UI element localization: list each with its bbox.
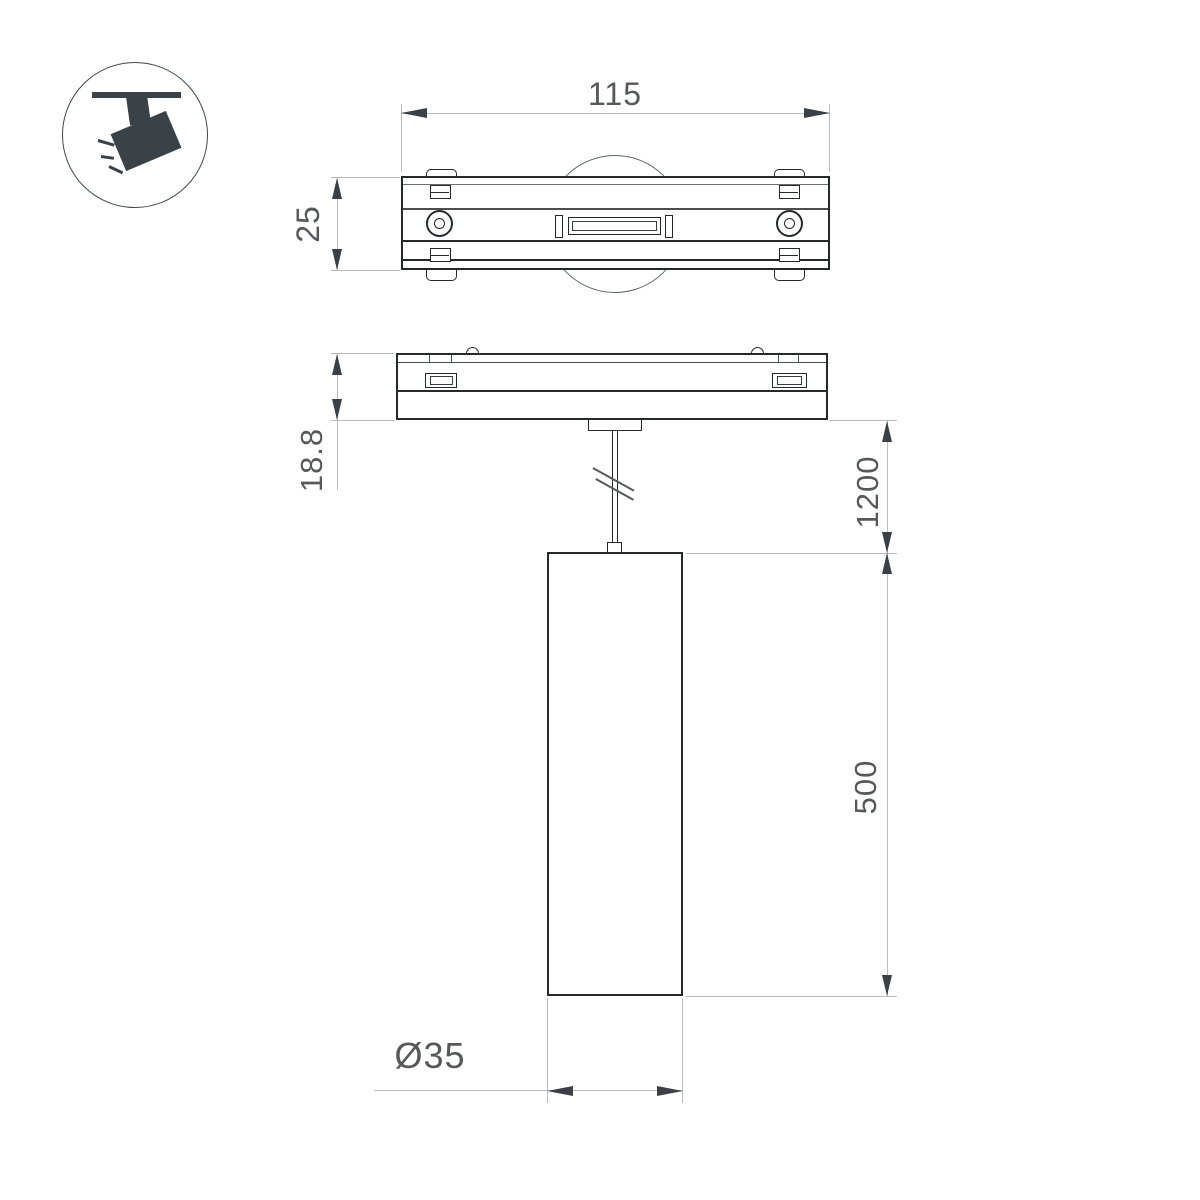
- mount-clip: [779, 248, 800, 262]
- side-clip-inner: [777, 376, 802, 385]
- profile-line: [403, 208, 828, 210]
- dimension-arrow: [332, 354, 342, 375]
- technical-drawing-canvas: 115 25 18.8 1200 500 Ø35: [0, 0, 1200, 1200]
- dimension-arrow: [332, 399, 342, 420]
- dimension-arrow: [401, 108, 427, 118]
- extension-line: [686, 553, 897, 554]
- dimension-arrow: [882, 532, 892, 553]
- profile-line: [403, 184, 828, 185]
- mount-clip: [779, 185, 800, 199]
- dimension-label-suspension-length: 1200: [851, 445, 885, 539]
- contact-pin: [665, 215, 673, 238]
- dimension-arrow: [882, 421, 892, 442]
- mount-clip: [430, 248, 451, 262]
- dimension-label-track-height: 25: [291, 193, 325, 255]
- dimension-line: [401, 113, 830, 114]
- contact-pin: [555, 215, 563, 238]
- dimension-arrow: [657, 1086, 683, 1096]
- dimension-label-body-diameter: Ø35: [374, 1039, 486, 1073]
- tick: [429, 354, 430, 362]
- extension-line: [686, 996, 897, 997]
- spring-tab: [774, 269, 805, 281]
- dimension-arrow: [332, 249, 342, 270]
- dimension-arrow: [882, 553, 892, 574]
- profile-line: [403, 240, 828, 242]
- tick: [778, 354, 779, 362]
- profile-line: [403, 259, 828, 261]
- dimension-line: [374, 1090, 683, 1091]
- dimension-arrow: [882, 975, 892, 996]
- screw-hole: [784, 218, 795, 229]
- dimension-arrow: [804, 108, 830, 118]
- dimension-arrow: [332, 178, 342, 199]
- side-view-body: [396, 353, 828, 420]
- contact-slot-inner: [572, 221, 657, 231]
- cable-gland: [607, 542, 622, 553]
- dimension-label-track-length: 115: [565, 77, 665, 111]
- dimension-line: [887, 553, 888, 996]
- dimension-label-body-length: 500: [849, 745, 883, 829]
- profile-line: [398, 362, 826, 363]
- mount-clip: [430, 185, 451, 199]
- side-clip-inner: [430, 376, 453, 385]
- profile-line: [398, 390, 826, 392]
- screw-hole: [434, 218, 445, 229]
- dimension-arrow: [547, 1086, 573, 1096]
- tick: [451, 354, 452, 362]
- spring-tab: [426, 269, 457, 281]
- lamp-body: [547, 552, 683, 996]
- cable-connector: [588, 419, 642, 431]
- dimension-label-base-thickness: 18.8: [295, 418, 329, 502]
- tick: [798, 354, 799, 362]
